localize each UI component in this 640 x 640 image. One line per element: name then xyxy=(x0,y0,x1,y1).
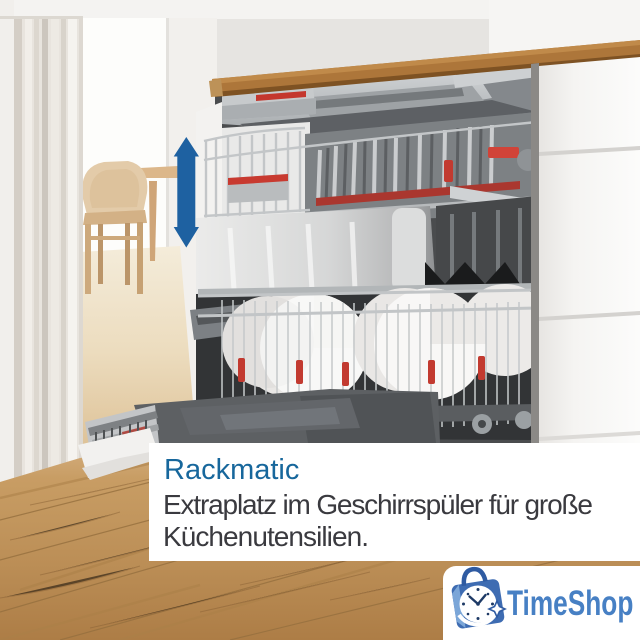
svg-text:Küchenutensilien.: Küchenutensilien. xyxy=(163,521,369,552)
svg-text:TimeShop: TimeShop xyxy=(507,583,633,623)
svg-text:Rackmatic: Rackmatic xyxy=(164,454,299,486)
svg-text:Extraplatz im Geschirrspüler f: Extraplatz im Geschirrspüler für große xyxy=(163,489,593,520)
